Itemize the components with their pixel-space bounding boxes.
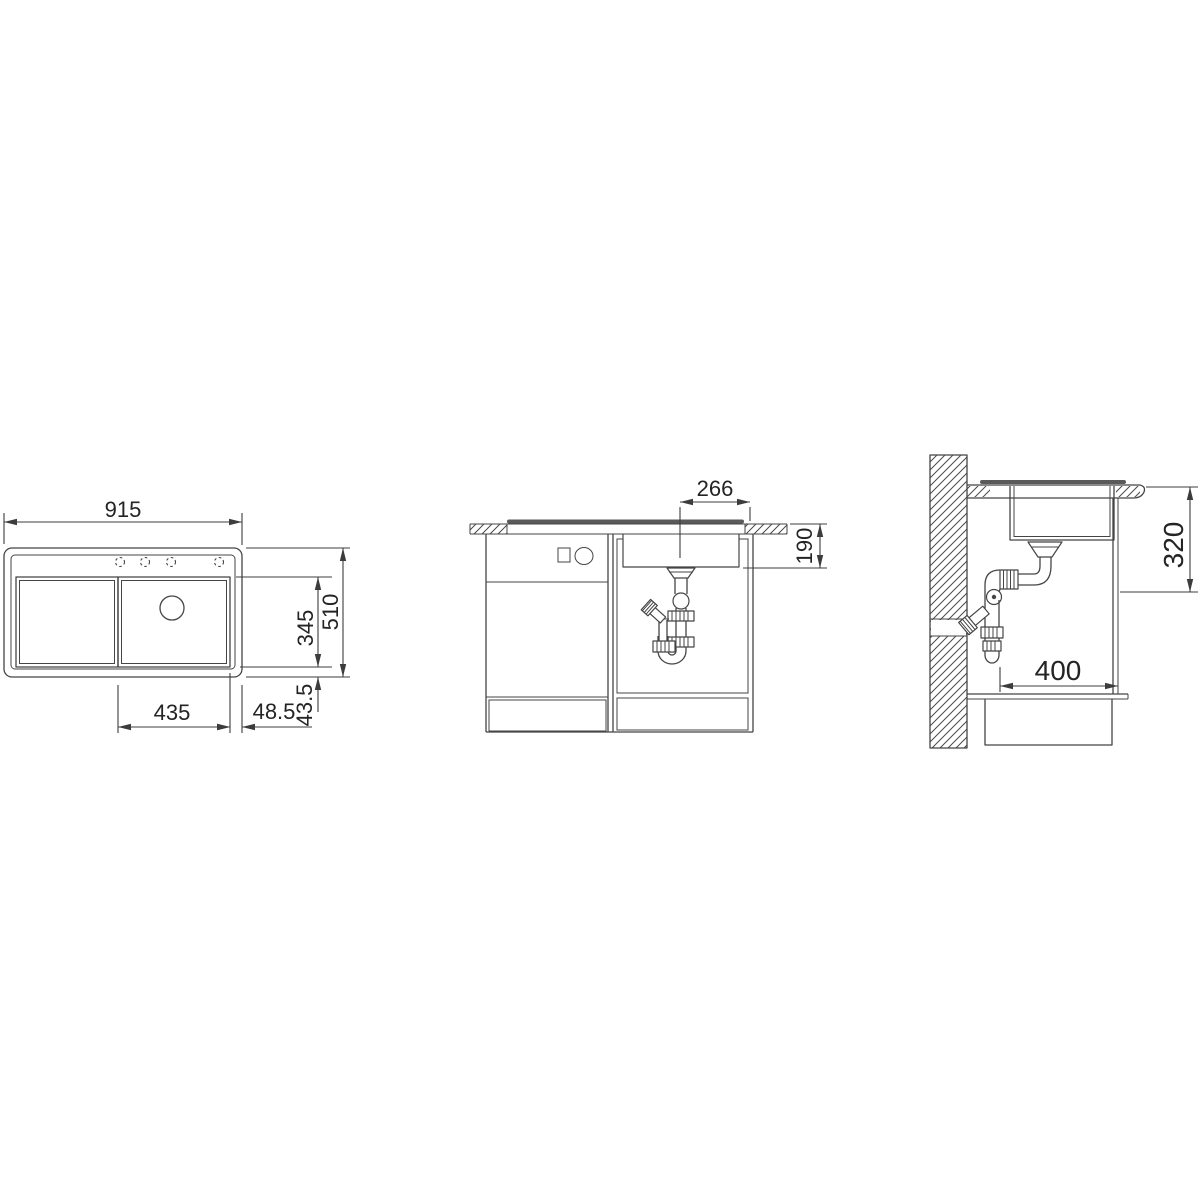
dim-label-48-5: 48.5 <box>253 699 296 724</box>
left-plinth-panel <box>489 700 606 731</box>
dim-label-43-5: 43.5 <box>292 684 317 727</box>
plinth <box>985 699 1112 745</box>
dim-label-510: 510 <box>318 594 343 631</box>
dim-bottom-offset: 43.5 <box>292 677 318 726</box>
dim-label-435: 435 <box>154 700 191 725</box>
knob-symbol <box>575 548 593 565</box>
dim-label-320: 320 <box>1158 522 1189 569</box>
basin-side <box>1010 486 1114 540</box>
dim-drain-distance: 400 <box>1000 655 1118 692</box>
wall <box>930 455 967 748</box>
dim-bowl-width: 435 <box>118 673 242 733</box>
dim-label-915: 915 <box>105 497 142 522</box>
right-drawer-panel <box>617 698 748 730</box>
sink-side-view: 320 400 <box>930 455 1198 748</box>
cabinet-side <box>967 498 1128 745</box>
standpipe-coupling-upper <box>981 627 1003 638</box>
ball-joint <box>673 593 689 609</box>
sink-front-view: 266 190 <box>470 476 827 732</box>
dim-bowl-depth: 345 <box>236 577 332 667</box>
dim-label-266: 266 <box>697 476 734 501</box>
siphon-trap-front <box>641 568 695 664</box>
tap-holes <box>116 558 224 567</box>
union-nut-upper <box>668 611 694 621</box>
dim-height-below-top: 320 <box>1120 487 1198 592</box>
technical-diagram: 915 510 345 43.5 435 <box>0 0 1200 1200</box>
dim-label-345: 345 <box>293 610 318 647</box>
dim-label-190: 190 <box>792 528 817 565</box>
sink-top-view: 915 510 345 43.5 435 <box>4 497 350 733</box>
basin-front <box>623 534 739 567</box>
bowl-area <box>118 577 230 667</box>
dim-label-400: 400 <box>1035 655 1082 686</box>
pipe-coupling <box>1000 570 1018 589</box>
installation-drawing-canvas: 915 510 345 43.5 435 <box>0 0 1200 1200</box>
appliance-branch <box>641 599 667 625</box>
outlet-union-nut <box>653 641 675 652</box>
drainer-area <box>16 577 118 667</box>
standpipe-coupling-lower <box>983 641 1001 651</box>
countertop-side <box>967 482 1145 498</box>
drain-hole <box>160 596 184 620</box>
dim-total-width: 915 <box>4 497 242 545</box>
siphon-trap-side <box>959 542 1062 663</box>
sink-outline <box>4 548 242 677</box>
countertop-front <box>470 522 787 535</box>
switch-symbol <box>558 548 570 562</box>
